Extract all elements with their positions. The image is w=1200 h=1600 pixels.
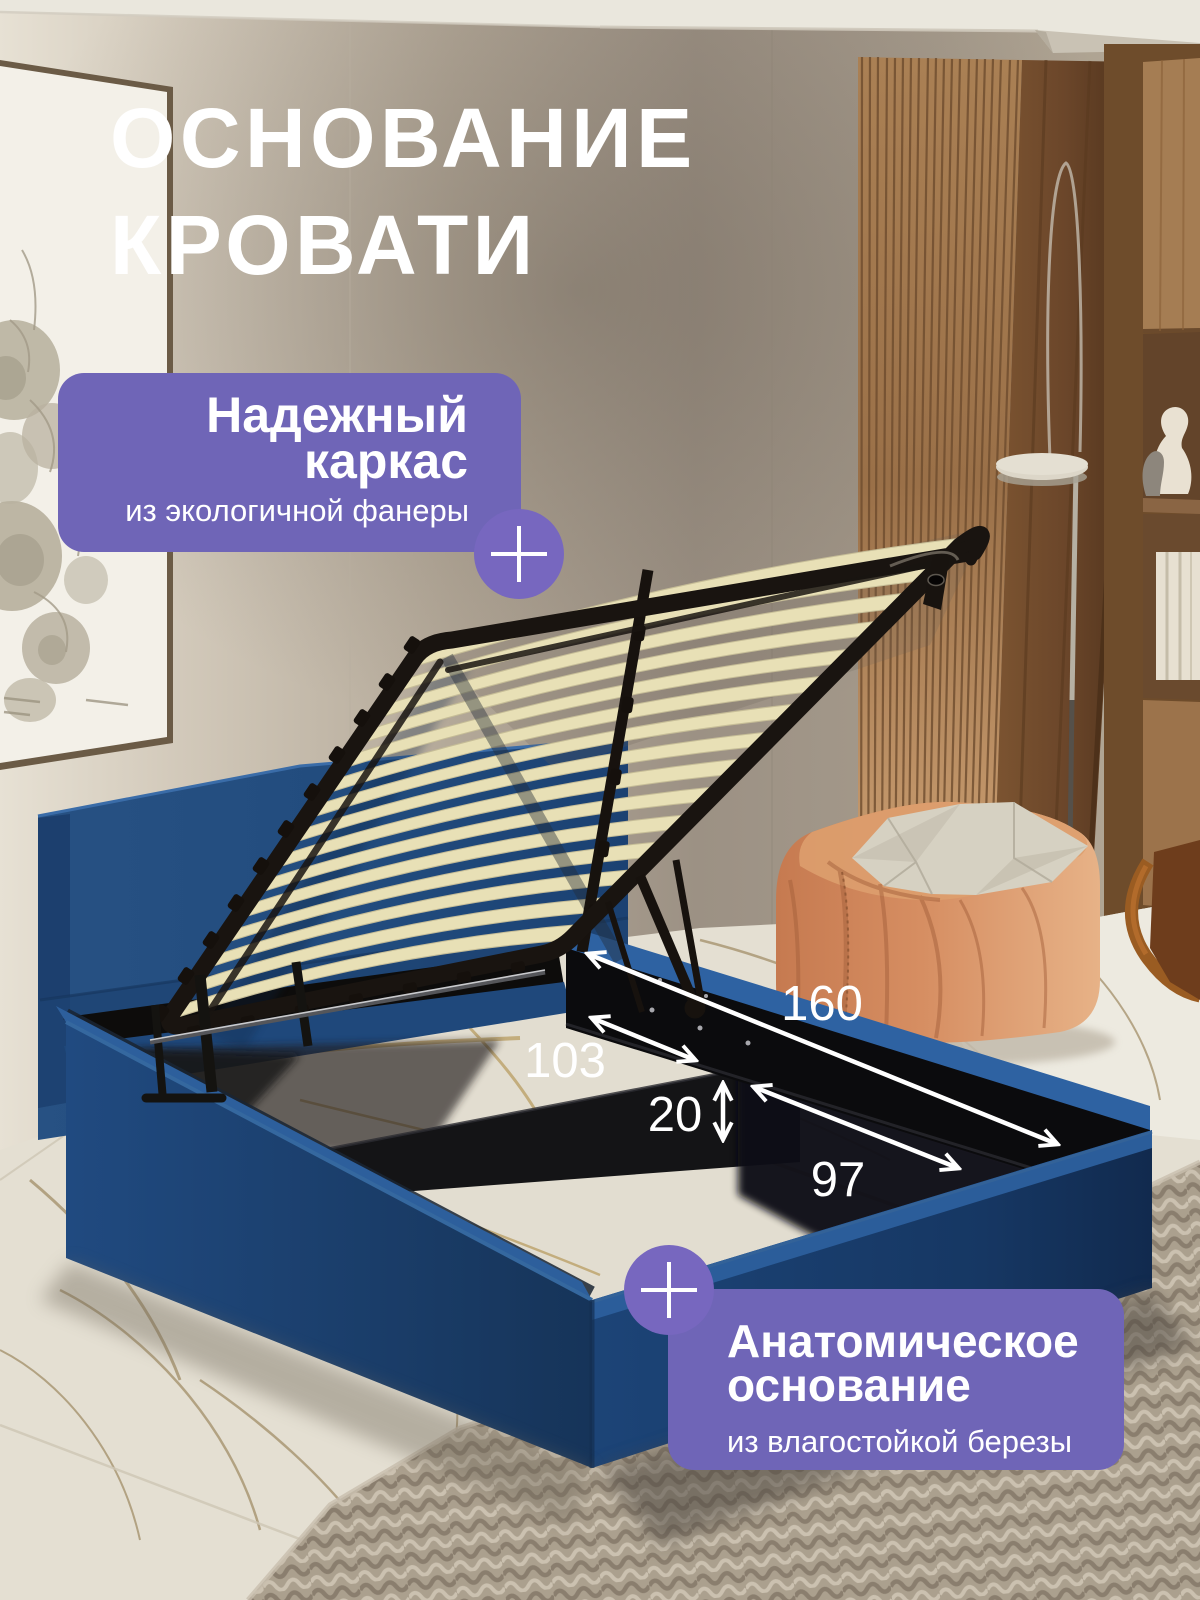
svg-text:20: 20: [648, 1088, 703, 1142]
svg-text:103: 103: [524, 1034, 606, 1088]
svg-text:97: 97: [811, 1153, 866, 1207]
svg-text:160: 160: [781, 977, 863, 1031]
